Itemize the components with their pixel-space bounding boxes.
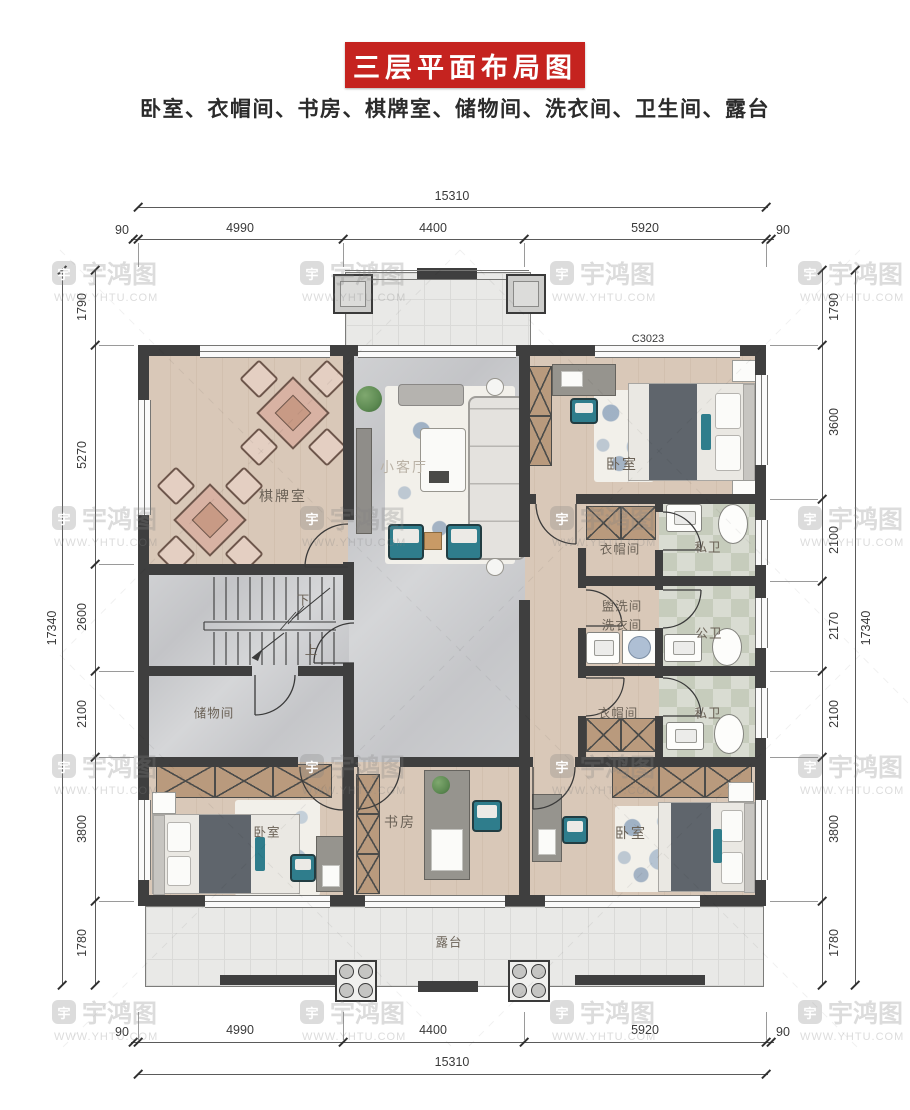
dim-line xyxy=(62,270,63,985)
dim-value: 3800 xyxy=(75,815,89,843)
armchair xyxy=(388,524,424,560)
blanket xyxy=(199,815,251,893)
dim-value: 4400 xyxy=(419,221,447,235)
column-circle xyxy=(531,983,546,998)
wall-int xyxy=(343,663,354,895)
terrace-column-right xyxy=(508,960,550,1002)
stairs-down-label: 下 xyxy=(297,590,310,609)
balcony-column-left xyxy=(333,274,373,314)
dim-value: 17340 xyxy=(45,611,59,646)
column-circle xyxy=(339,983,354,998)
watermark: 宇宇鸿图WWW.YHTU.COM xyxy=(798,994,910,1043)
bed xyxy=(658,802,756,892)
dim-line xyxy=(138,207,768,208)
watermark-logo-icon: 宇 xyxy=(300,1000,324,1024)
bookshelf-cell xyxy=(356,774,380,814)
desk-chair xyxy=(570,398,598,424)
room-label-private-bath-top: 私卫 xyxy=(694,537,721,556)
pillow xyxy=(721,810,743,842)
dim-ext xyxy=(770,345,818,346)
dim-line xyxy=(95,270,96,985)
tv-console xyxy=(356,428,372,534)
chair xyxy=(156,466,196,506)
watermark-logo-icon: 宇 xyxy=(550,261,574,285)
room-label-washroom-1: 盥洗间 xyxy=(602,596,643,615)
desk xyxy=(552,364,616,396)
blanket xyxy=(649,384,697,480)
room-label-bedroom-top: 卧室 xyxy=(606,454,638,474)
title-banner: 三层平面布局图 xyxy=(345,42,585,88)
dim-line xyxy=(855,270,856,985)
dim-value: 90 xyxy=(115,1025,129,1039)
terrace-rail-accent-2 xyxy=(575,975,705,985)
terrace-rail-accent-3 xyxy=(418,981,478,992)
pillow xyxy=(167,822,191,852)
dim-value: 15310 xyxy=(435,189,470,203)
wardrobe-cell xyxy=(659,764,706,798)
side-table xyxy=(486,558,504,576)
pillow xyxy=(721,852,743,884)
wall-int xyxy=(400,757,533,767)
wardrobe-cell xyxy=(528,416,552,466)
dim-ext xyxy=(138,243,139,267)
wall-int xyxy=(519,345,530,557)
dim-ext xyxy=(770,901,818,902)
dim-ext xyxy=(343,243,344,267)
bookshelf-cell xyxy=(356,854,380,894)
low-table xyxy=(424,532,442,550)
accent-pillow xyxy=(701,414,711,450)
dim-ext xyxy=(770,757,818,758)
wardrobe xyxy=(156,764,332,798)
bookshelf-cell xyxy=(356,814,380,854)
side-table xyxy=(486,378,504,396)
window xyxy=(755,800,768,880)
watermark-logo-icon: 宇 xyxy=(52,261,76,285)
window-code-label: C3023 xyxy=(632,333,664,345)
dim-ext xyxy=(343,1012,344,1040)
wardrobe-cell xyxy=(612,764,659,798)
desk-chair xyxy=(290,854,316,882)
dim-value: 3600 xyxy=(827,408,841,436)
desk-chair xyxy=(562,816,588,844)
nightstand xyxy=(152,792,176,814)
room-label-bedroom-left: 卧室 xyxy=(253,822,280,841)
dim-line xyxy=(822,270,823,985)
chair xyxy=(224,466,264,506)
wardrobe-cell xyxy=(273,764,332,798)
dim-ext xyxy=(766,1012,767,1040)
window-c3023 xyxy=(595,345,740,358)
dim-ext xyxy=(99,901,134,902)
wall-int xyxy=(138,564,354,575)
dim-value: 2100 xyxy=(827,700,841,728)
nightstand xyxy=(728,782,754,802)
wardrobe-cell xyxy=(586,718,621,752)
wall-int xyxy=(578,576,766,586)
window xyxy=(205,895,330,908)
chair xyxy=(239,427,279,467)
wardrobe xyxy=(586,506,656,540)
column-circle xyxy=(358,964,373,979)
watermark-brand: 宇鸿图 xyxy=(828,255,903,291)
watermark-logo-icon: 宇 xyxy=(798,1000,822,1024)
wall-int xyxy=(138,666,252,676)
watermark-brand: 宇鸿图 xyxy=(828,994,903,1030)
room-label-chess: 棋牌室 xyxy=(259,486,307,506)
window xyxy=(755,520,768,565)
watermark: 宇宇鸿图WWW.YHTU.COM xyxy=(798,500,910,549)
dim-value: 5920 xyxy=(631,221,659,235)
watermark-logo-icon: 宇 xyxy=(300,261,324,285)
window xyxy=(138,400,151,515)
sink xyxy=(666,722,704,750)
watermark-logo-icon: 宇 xyxy=(52,754,76,778)
watermark-brand: 宇鸿图 xyxy=(828,748,903,784)
wall-int xyxy=(343,757,358,767)
chair xyxy=(307,427,347,467)
mahjong-table-set xyxy=(245,365,341,461)
wall-int xyxy=(298,666,354,676)
dim-value: 2100 xyxy=(827,526,841,554)
wardrobe xyxy=(586,718,656,752)
dim-value: 90 xyxy=(115,223,129,237)
pillow xyxy=(715,393,741,429)
wall-int xyxy=(576,494,766,504)
dim-value: 90 xyxy=(776,1025,790,1039)
room-label-terrace: 露台 xyxy=(435,932,462,951)
dim-value: 4990 xyxy=(226,1023,254,1037)
dim-value: 4990 xyxy=(226,221,254,235)
wall-int xyxy=(138,757,298,767)
dim-line xyxy=(131,1042,774,1043)
dim-value: 2170 xyxy=(827,612,841,640)
wall-int xyxy=(530,494,536,504)
dim-ext xyxy=(770,671,818,672)
wall-int xyxy=(343,345,354,520)
dim-ext xyxy=(770,499,818,500)
subtitle: 卧室、衣帽间、书房、棋牌室、储物间、洗衣间、卫生间、露台 xyxy=(0,93,910,123)
watermark-url: WWW.YHTU.COM xyxy=(798,1031,910,1043)
paper xyxy=(322,865,340,887)
stairs-up-label: 上 xyxy=(305,640,318,659)
column-circle xyxy=(512,983,527,998)
room-label-storage: 储物间 xyxy=(194,703,235,722)
floor-plan-sheet: 三层平面布局图 卧室、衣帽间、书房、棋牌室、储物间、洗衣间、卫生间、露台 xyxy=(0,0,910,1110)
dim-ext xyxy=(770,581,818,582)
pillow xyxy=(715,435,741,471)
column-circle xyxy=(358,983,373,998)
paper xyxy=(431,829,463,871)
dim-value: 15310 xyxy=(435,1055,470,1069)
paper xyxy=(561,371,583,387)
wall-int xyxy=(578,666,766,676)
wall-int xyxy=(519,600,530,895)
armchair xyxy=(446,524,482,560)
wall-int xyxy=(578,716,586,763)
watermark-url: WWW.YHTU.COM xyxy=(798,292,910,304)
watermark: 宇宇鸿图WWW.YHTU.COM xyxy=(52,994,232,1043)
headboard xyxy=(153,815,165,895)
dim-ext xyxy=(138,1012,139,1040)
window xyxy=(755,598,768,648)
dim-value: 2600 xyxy=(75,603,89,631)
plant xyxy=(356,386,382,412)
dim-value: 90 xyxy=(776,223,790,237)
pillow xyxy=(167,856,191,886)
watermark-url: WWW.YHTU.COM xyxy=(798,537,910,549)
window xyxy=(200,345,330,358)
dim-ext xyxy=(99,564,134,565)
mahjong-table-set xyxy=(162,472,258,568)
chair xyxy=(239,359,279,399)
watermark: 宇宇鸿图WWW.YHTU.COM xyxy=(550,255,730,304)
wardrobe-cell xyxy=(215,764,274,798)
wardrobe-cell xyxy=(621,506,656,540)
plant xyxy=(432,776,450,794)
terrace-rail-accent-1 xyxy=(220,975,350,985)
room-label-private-bath-bottom: 私卫 xyxy=(694,703,721,722)
dim-value: 1780 xyxy=(75,929,89,957)
room-label-study: 书房 xyxy=(384,812,416,832)
wall-int xyxy=(655,504,663,512)
headboard xyxy=(743,384,755,482)
dim-ext xyxy=(524,1012,525,1040)
dim-value: 17340 xyxy=(859,611,873,646)
dim-value: 5270 xyxy=(75,441,89,469)
dim-ext xyxy=(99,345,134,346)
accent-pillow xyxy=(713,829,722,863)
bench xyxy=(398,384,464,406)
title-text: 三层平面布局图 xyxy=(353,46,577,85)
dim-ext xyxy=(766,243,767,267)
accent-pillow xyxy=(255,837,265,871)
dim-ext xyxy=(99,671,134,672)
window xyxy=(138,800,151,880)
wardrobe-cell xyxy=(528,366,552,416)
window xyxy=(755,375,768,465)
column-circle xyxy=(512,964,527,979)
dim-value: 1780 xyxy=(827,929,841,957)
dim-ext xyxy=(99,757,134,758)
watermark-logo-icon: 宇 xyxy=(550,1000,574,1024)
headboard xyxy=(744,803,755,893)
watermark-brand: 宇鸿图 xyxy=(580,255,655,291)
watermark: 宇宇鸿图WWW.YHTU.COM xyxy=(798,748,910,797)
room-label-living: 小客厅 xyxy=(380,457,428,477)
room-label-cloak-top: 衣帽间 xyxy=(600,539,641,558)
desk-chair xyxy=(472,800,502,832)
room-label-bedroom-right: 卧室 xyxy=(615,823,647,843)
paper xyxy=(538,829,556,855)
dim-line xyxy=(131,239,774,240)
watermark-logo-icon: 宇 xyxy=(52,506,76,530)
sink xyxy=(586,632,620,664)
wall-int xyxy=(655,716,663,763)
wardrobe xyxy=(528,366,552,466)
dim-line xyxy=(138,1074,768,1075)
window-terrace-door xyxy=(365,895,505,908)
toilet xyxy=(718,504,748,544)
watermark-url: WWW.YHTU.COM xyxy=(550,292,730,304)
desk xyxy=(532,794,562,862)
washing-machine xyxy=(622,630,656,664)
balcony-column-right xyxy=(506,274,546,314)
window-balcony-door xyxy=(358,345,516,358)
watermark-logo-icon: 宇 xyxy=(798,506,822,530)
dim-value: 3800 xyxy=(827,815,841,843)
window xyxy=(545,895,700,908)
wardrobe-cell xyxy=(621,718,656,752)
blanket xyxy=(671,803,711,891)
chair xyxy=(307,359,347,399)
dim-ext xyxy=(524,243,525,267)
room-label-washroom-2: 洗衣间 xyxy=(602,615,643,634)
dim-value: 4400 xyxy=(419,1023,447,1037)
room-label-public-bath: 公卫 xyxy=(695,623,722,642)
watermark-url: WWW.YHTU.COM xyxy=(798,785,910,797)
sink xyxy=(666,504,702,532)
watermark-logo-icon: 宇 xyxy=(52,1000,76,1024)
bed xyxy=(628,383,756,481)
dim-value: 5920 xyxy=(631,1023,659,1037)
column-circle xyxy=(339,964,354,979)
column-circle xyxy=(531,964,546,979)
dim-value: 2100 xyxy=(75,700,89,728)
window xyxy=(755,688,768,738)
dim-value: 1790 xyxy=(75,293,89,321)
watermark-brand: 宇鸿图 xyxy=(82,255,157,291)
wall-int xyxy=(575,757,766,767)
room-label-cloak-bottom: 衣帽间 xyxy=(598,703,639,722)
bookshelf xyxy=(356,774,380,894)
desk xyxy=(316,836,346,892)
watermark: 宇宇鸿图WWW.YHTU.COM xyxy=(798,255,910,304)
dim-value: 1790 xyxy=(827,293,841,321)
terrace-column-left xyxy=(335,960,377,1002)
wardrobe-cell xyxy=(586,506,621,540)
watermark: 宇宇鸿图WWW.YHTU.COM xyxy=(300,994,480,1043)
